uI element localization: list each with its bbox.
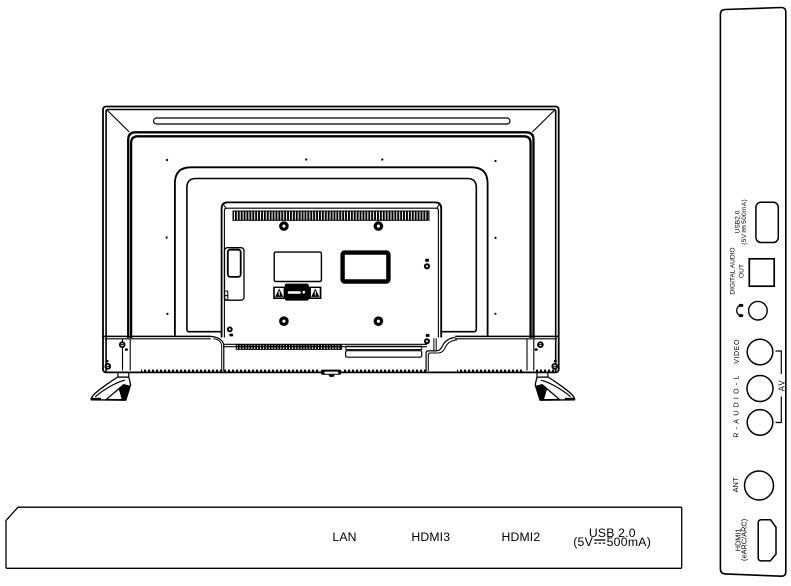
svg-text:ANT: ANT (731, 477, 740, 493)
svg-text:500mA): 500mA) (741, 199, 748, 224)
svg-text:OUT: OUT (738, 264, 745, 278)
svg-text:HDMI2: HDMI2 (501, 530, 540, 544)
svg-text:HDMI3: HDMI3 (411, 530, 450, 544)
svg-text:AV: AV (777, 379, 786, 391)
svg-text:LAN: LAN (332, 530, 356, 544)
svg-text:R-AUDIO-L: R-AUDIO-L (734, 372, 741, 437)
svg-text:VIDEO: VIDEO (734, 339, 741, 364)
svg-text:500mA): 500mA) (607, 535, 651, 549)
svg-text:(5V: (5V (741, 233, 748, 244)
svg-text:(5V: (5V (573, 535, 593, 549)
svg-text:DIGITAL AUDIO: DIGITAL AUDIO (730, 247, 737, 294)
svg-text:(eARC/ARC): (eARC/ARC) (740, 519, 749, 561)
